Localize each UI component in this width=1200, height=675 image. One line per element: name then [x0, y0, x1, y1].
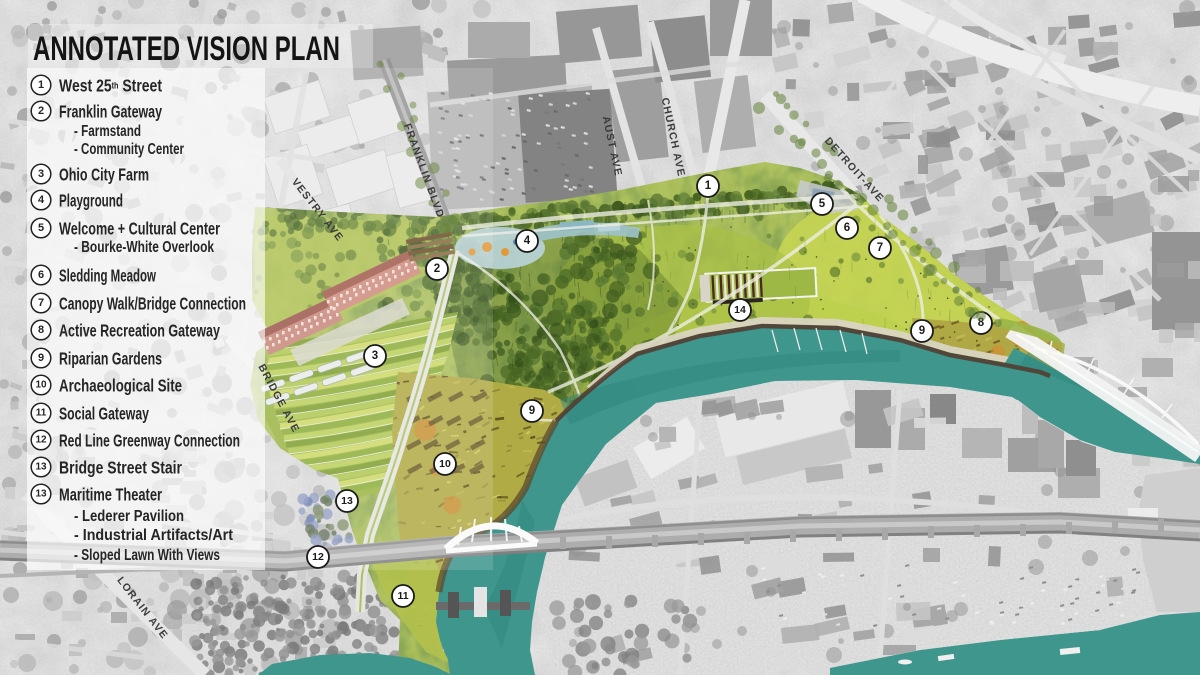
svg-text:4: 4	[38, 194, 45, 206]
svg-text:11: 11	[397, 590, 408, 602]
svg-text:11: 11	[36, 408, 47, 419]
svg-text:Playground: Playground	[59, 191, 123, 211]
svg-text:West 25th Street: West 25th Street	[59, 76, 162, 96]
svg-text:Archaeological Site: Archaeological Site	[59, 376, 182, 396]
svg-text:6: 6	[38, 269, 44, 281]
svg-text:8: 8	[38, 324, 44, 336]
svg-text:10: 10	[35, 380, 47, 391]
svg-text:3: 3	[372, 350, 378, 362]
svg-text:- Lederer Pavilion: - Lederer Pavilion	[74, 508, 184, 525]
svg-text:Riparian Gardens: Riparian Gardens	[59, 349, 162, 369]
svg-text:Social Gateway: Social Gateway	[59, 404, 149, 424]
svg-text:6: 6	[844, 222, 850, 234]
svg-text:14: 14	[734, 304, 746, 316]
svg-text:9: 9	[38, 352, 44, 364]
svg-text:Canopy Walk/Bridge Connection: Canopy Walk/Bridge Connection	[59, 294, 246, 314]
svg-text:- Community Center: - Community Center	[74, 141, 184, 158]
svg-text:Welcome + Cultural Center: Welcome + Cultural Center	[59, 219, 220, 239]
svg-text:- Farmstand: - Farmstand	[74, 123, 141, 140]
svg-text:7: 7	[38, 297, 44, 309]
svg-text:12: 12	[35, 435, 47, 446]
svg-text:Franklin Gateway: Franklin Gateway	[59, 102, 162, 122]
svg-text:13: 13	[35, 489, 47, 500]
svg-text:1: 1	[38, 79, 44, 91]
svg-text:- Sloped Lawn With Views: - Sloped Lawn With Views	[74, 547, 220, 564]
svg-text:10: 10	[439, 458, 451, 470]
svg-text:9: 9	[919, 325, 925, 337]
svg-text:7: 7	[877, 242, 883, 254]
svg-text:2: 2	[434, 263, 440, 275]
svg-text:1: 1	[705, 180, 712, 192]
svg-text:9: 9	[529, 405, 535, 417]
svg-text:Ohio City Farm: Ohio City Farm	[59, 165, 149, 185]
svg-text:3: 3	[38, 168, 44, 180]
svg-text:Red Line Greenway Connection: Red Line Greenway Connection	[59, 431, 240, 451]
svg-text:5: 5	[38, 222, 44, 234]
svg-text:- Industrial Artifacts/Art: - Industrial Artifacts/Art	[74, 527, 234, 544]
svg-text:5: 5	[819, 198, 826, 210]
svg-text:4: 4	[524, 235, 531, 247]
svg-text:ANNOTATED VISION PLAN: ANNOTATED VISION PLAN	[33, 30, 340, 68]
svg-text:Bridge Street Stair: Bridge Street Stair	[59, 458, 182, 478]
svg-text:- Bourke-White Overlook: - Bourke-White Overlook	[74, 239, 214, 256]
svg-text:2: 2	[38, 105, 44, 117]
svg-text:12: 12	[312, 551, 324, 563]
svg-text:Sledding Meadow: Sledding Meadow	[59, 266, 156, 286]
svg-text:Active Recreation Gateway: Active Recreation Gateway	[59, 321, 220, 341]
svg-text:Maritime Theater: Maritime Theater	[59, 485, 162, 505]
svg-text:13: 13	[341, 495, 353, 507]
svg-text:13: 13	[35, 462, 47, 473]
